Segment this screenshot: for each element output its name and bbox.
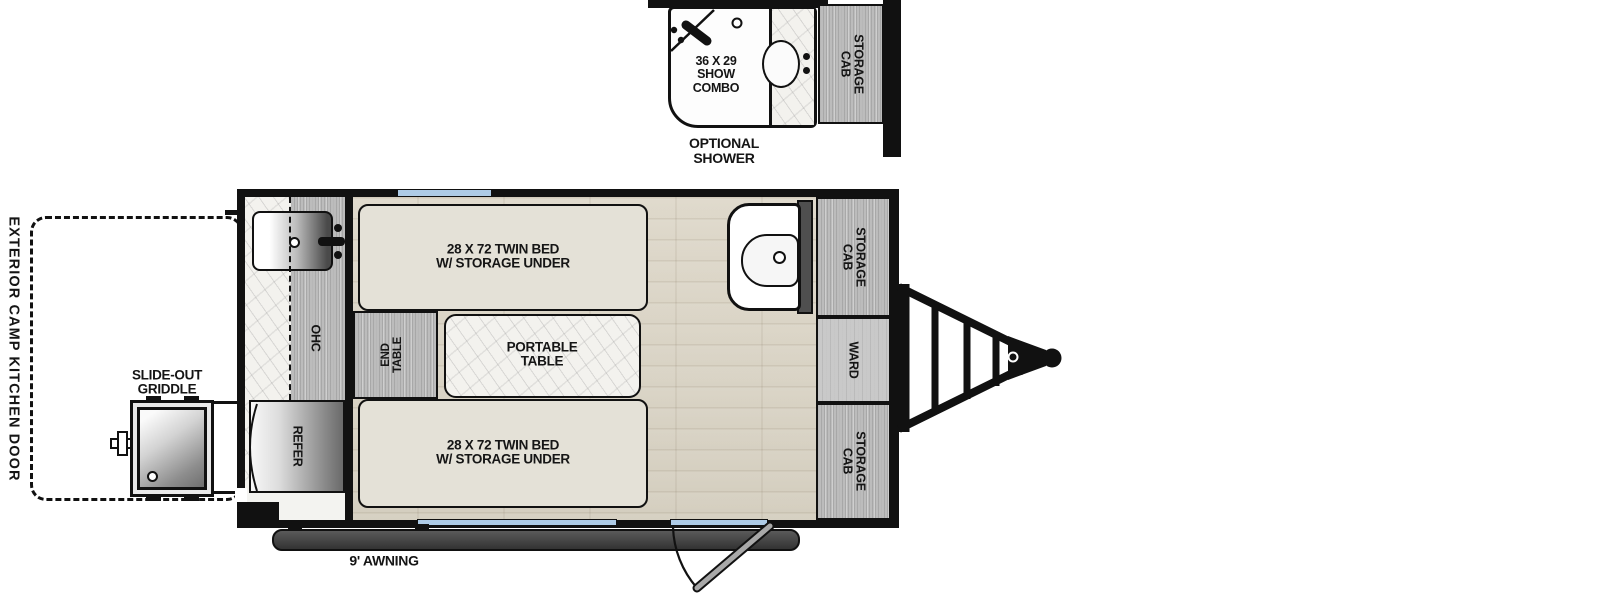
shower-combo-label: 36 X 29 SHOW COMBO <box>693 55 739 95</box>
hitch-frame <box>899 284 1039 432</box>
slide-out-griddle <box>130 400 214 497</box>
galley-partition-wall <box>345 197 353 520</box>
exterior-camp-kitchen-door-label: EXTERIOR CAMP KITCHEN DOOR <box>5 216 20 481</box>
toilet-bowl <box>741 234 799 287</box>
slide-out-griddle-label: SLIDE-OUT GRIDDLE <box>132 369 202 398</box>
refer-label: REFER <box>290 426 303 467</box>
portable-table-label: PORTABLE TABLE <box>507 341 578 370</box>
entry-door-window <box>670 519 768 526</box>
sink-faucet-icon <box>318 237 345 246</box>
storage-cab-top-label: STORAGE CAB <box>840 227 867 287</box>
twin-bed-top-label: 28 X 72 TWIN BED W/ STORAGE UNDER <box>436 243 570 272</box>
sink-faucet-dot <box>334 224 342 232</box>
hitch-ball-icon <box>1043 349 1062 368</box>
griddle-bay-opening <box>235 488 247 502</box>
griddle-knob <box>117 431 128 456</box>
shower-sink <box>762 40 800 88</box>
sink-faucet-dot <box>334 251 342 259</box>
shower-storage-cab-label: STORAGE CAB <box>838 34 865 94</box>
awning-label: 9' AWNING <box>349 554 418 569</box>
toilet-flush-button <box>773 251 786 264</box>
window-top <box>397 189 492 197</box>
storage-cab-bottom-label: STORAGE CAB <box>840 431 867 491</box>
griddle-dot <box>147 471 158 482</box>
hitch-pin-hole <box>1009 353 1018 362</box>
rv-floorplan-diagram: 36 X 29 SHOW COMBO STORAGE CAB OPTIONAL … <box>0 0 1600 596</box>
twin-bed-bottom-label: 28 X 72 TWIN BED W/ STORAGE UNDER <box>436 439 570 468</box>
shower-faucet-dot <box>803 53 810 60</box>
ohc-label: OHC <box>308 325 321 352</box>
awning-bar <box>272 529 800 551</box>
optional-shower-caption: OPTIONAL SHOWER <box>689 136 759 166</box>
corner-wall-block <box>237 502 279 528</box>
ohc-dashed-divider <box>289 197 291 400</box>
end-table-label: END TABLE <box>380 337 404 373</box>
hitch-coupler <box>1008 336 1046 380</box>
shower-faucet-dot <box>803 67 810 74</box>
window-bottom <box>417 519 617 526</box>
ward-label: WARD <box>846 342 859 379</box>
shower-section-right-wall <box>883 0 901 157</box>
